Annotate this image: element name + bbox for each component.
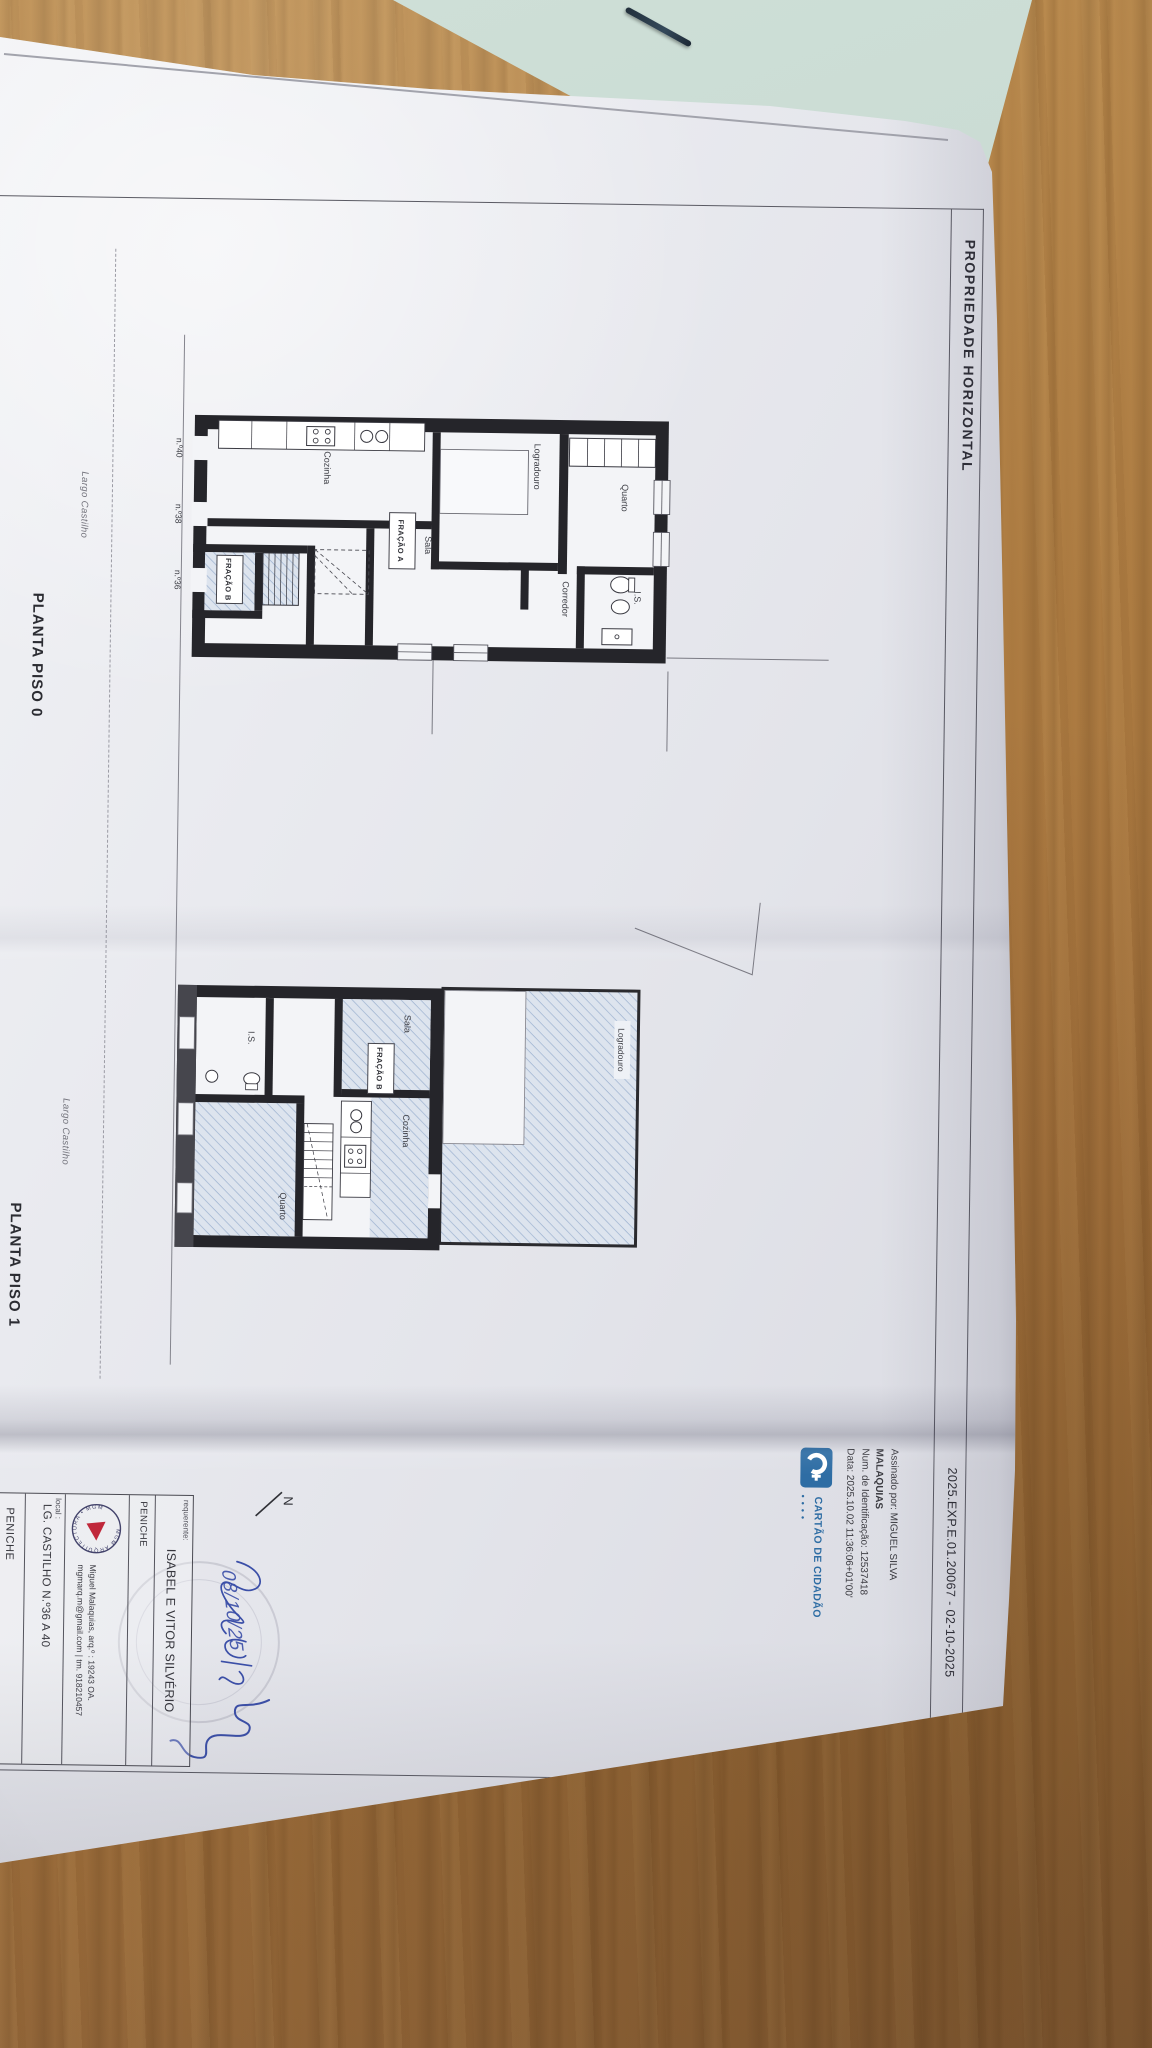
plan0-caption: PLANTA PISO 0 xyxy=(28,593,47,718)
room-label-is: I.S. xyxy=(246,1031,256,1045)
room-label-quarto: Quarto xyxy=(620,484,630,512)
street-name: Largo Castilho xyxy=(78,471,90,538)
door-number: n.º40 xyxy=(174,438,184,458)
room-label-is: I.S. xyxy=(632,591,642,605)
local-label: local : xyxy=(54,1498,63,1519)
toilet-icon xyxy=(244,1073,260,1085)
basin-icon xyxy=(206,1070,218,1082)
fracao-a-label: FRAÇÃO A xyxy=(396,519,406,562)
floor-plan-piso-1: Logradouro xyxy=(163,975,647,1282)
toilet-icon xyxy=(611,577,631,593)
room-label-logradouro: Logradouro xyxy=(532,444,543,490)
citizen-card-label: CARTÃO DE CIDADÃO xyxy=(810,1497,824,1618)
mgm-stamp-icon: MGM ARQUITECTURA • MGM xyxy=(69,1500,126,1557)
municipality-value: PENICHE xyxy=(137,1501,149,1547)
door-number: n.º36 xyxy=(173,570,183,590)
document-content: PROPRIEDADE HORIZONTAL 2025.EXP.E.01.200… xyxy=(0,191,990,1825)
room-label-cozinha: Cozinha xyxy=(401,1114,411,1147)
floor-plan-piso-0: FRAÇÃO B FRAÇÃO A Quarto I.S. Corredor L… xyxy=(163,340,688,697)
citizen-card-dots: •••• xyxy=(798,1494,808,1523)
yard-void xyxy=(443,990,526,1144)
requerente-label: requerente: xyxy=(181,1500,191,1541)
room-label-sala: Sala xyxy=(402,1015,412,1033)
plan1-caption: PLANTA PISO 1 xyxy=(5,1202,24,1327)
patio xyxy=(440,449,529,514)
shower-icon xyxy=(602,629,632,645)
north-arrow-icon: N xyxy=(248,1482,297,1527)
room-label-sala: Sala xyxy=(423,536,433,554)
lot-line xyxy=(667,658,829,661)
door-number: n.º38 xyxy=(173,504,183,524)
room-label-cozinha: Cozinha xyxy=(322,451,332,484)
stairs xyxy=(303,1124,333,1220)
room-label-quarto: Quarto xyxy=(278,1192,288,1220)
fracao-b-label: FRAÇÃO B xyxy=(223,558,233,601)
room-label-corredor: Corredor xyxy=(560,581,570,617)
street-name: Largo Castilho xyxy=(60,1098,72,1165)
bidet-icon xyxy=(611,600,629,614)
fracao-b-label: FRAÇÃO B xyxy=(375,1047,385,1090)
street-axis-dashed-line xyxy=(100,249,117,1379)
room-label-logradouro: Logradouro xyxy=(616,1028,627,1072)
local-municipality-value: PENICHE xyxy=(3,1507,16,1560)
photo-of-floor-plan-document: PROPRIEDADE HORIZONTAL 2025.EXP.E.01.200… xyxy=(0,0,1152,2048)
north-label: N xyxy=(281,1496,296,1506)
